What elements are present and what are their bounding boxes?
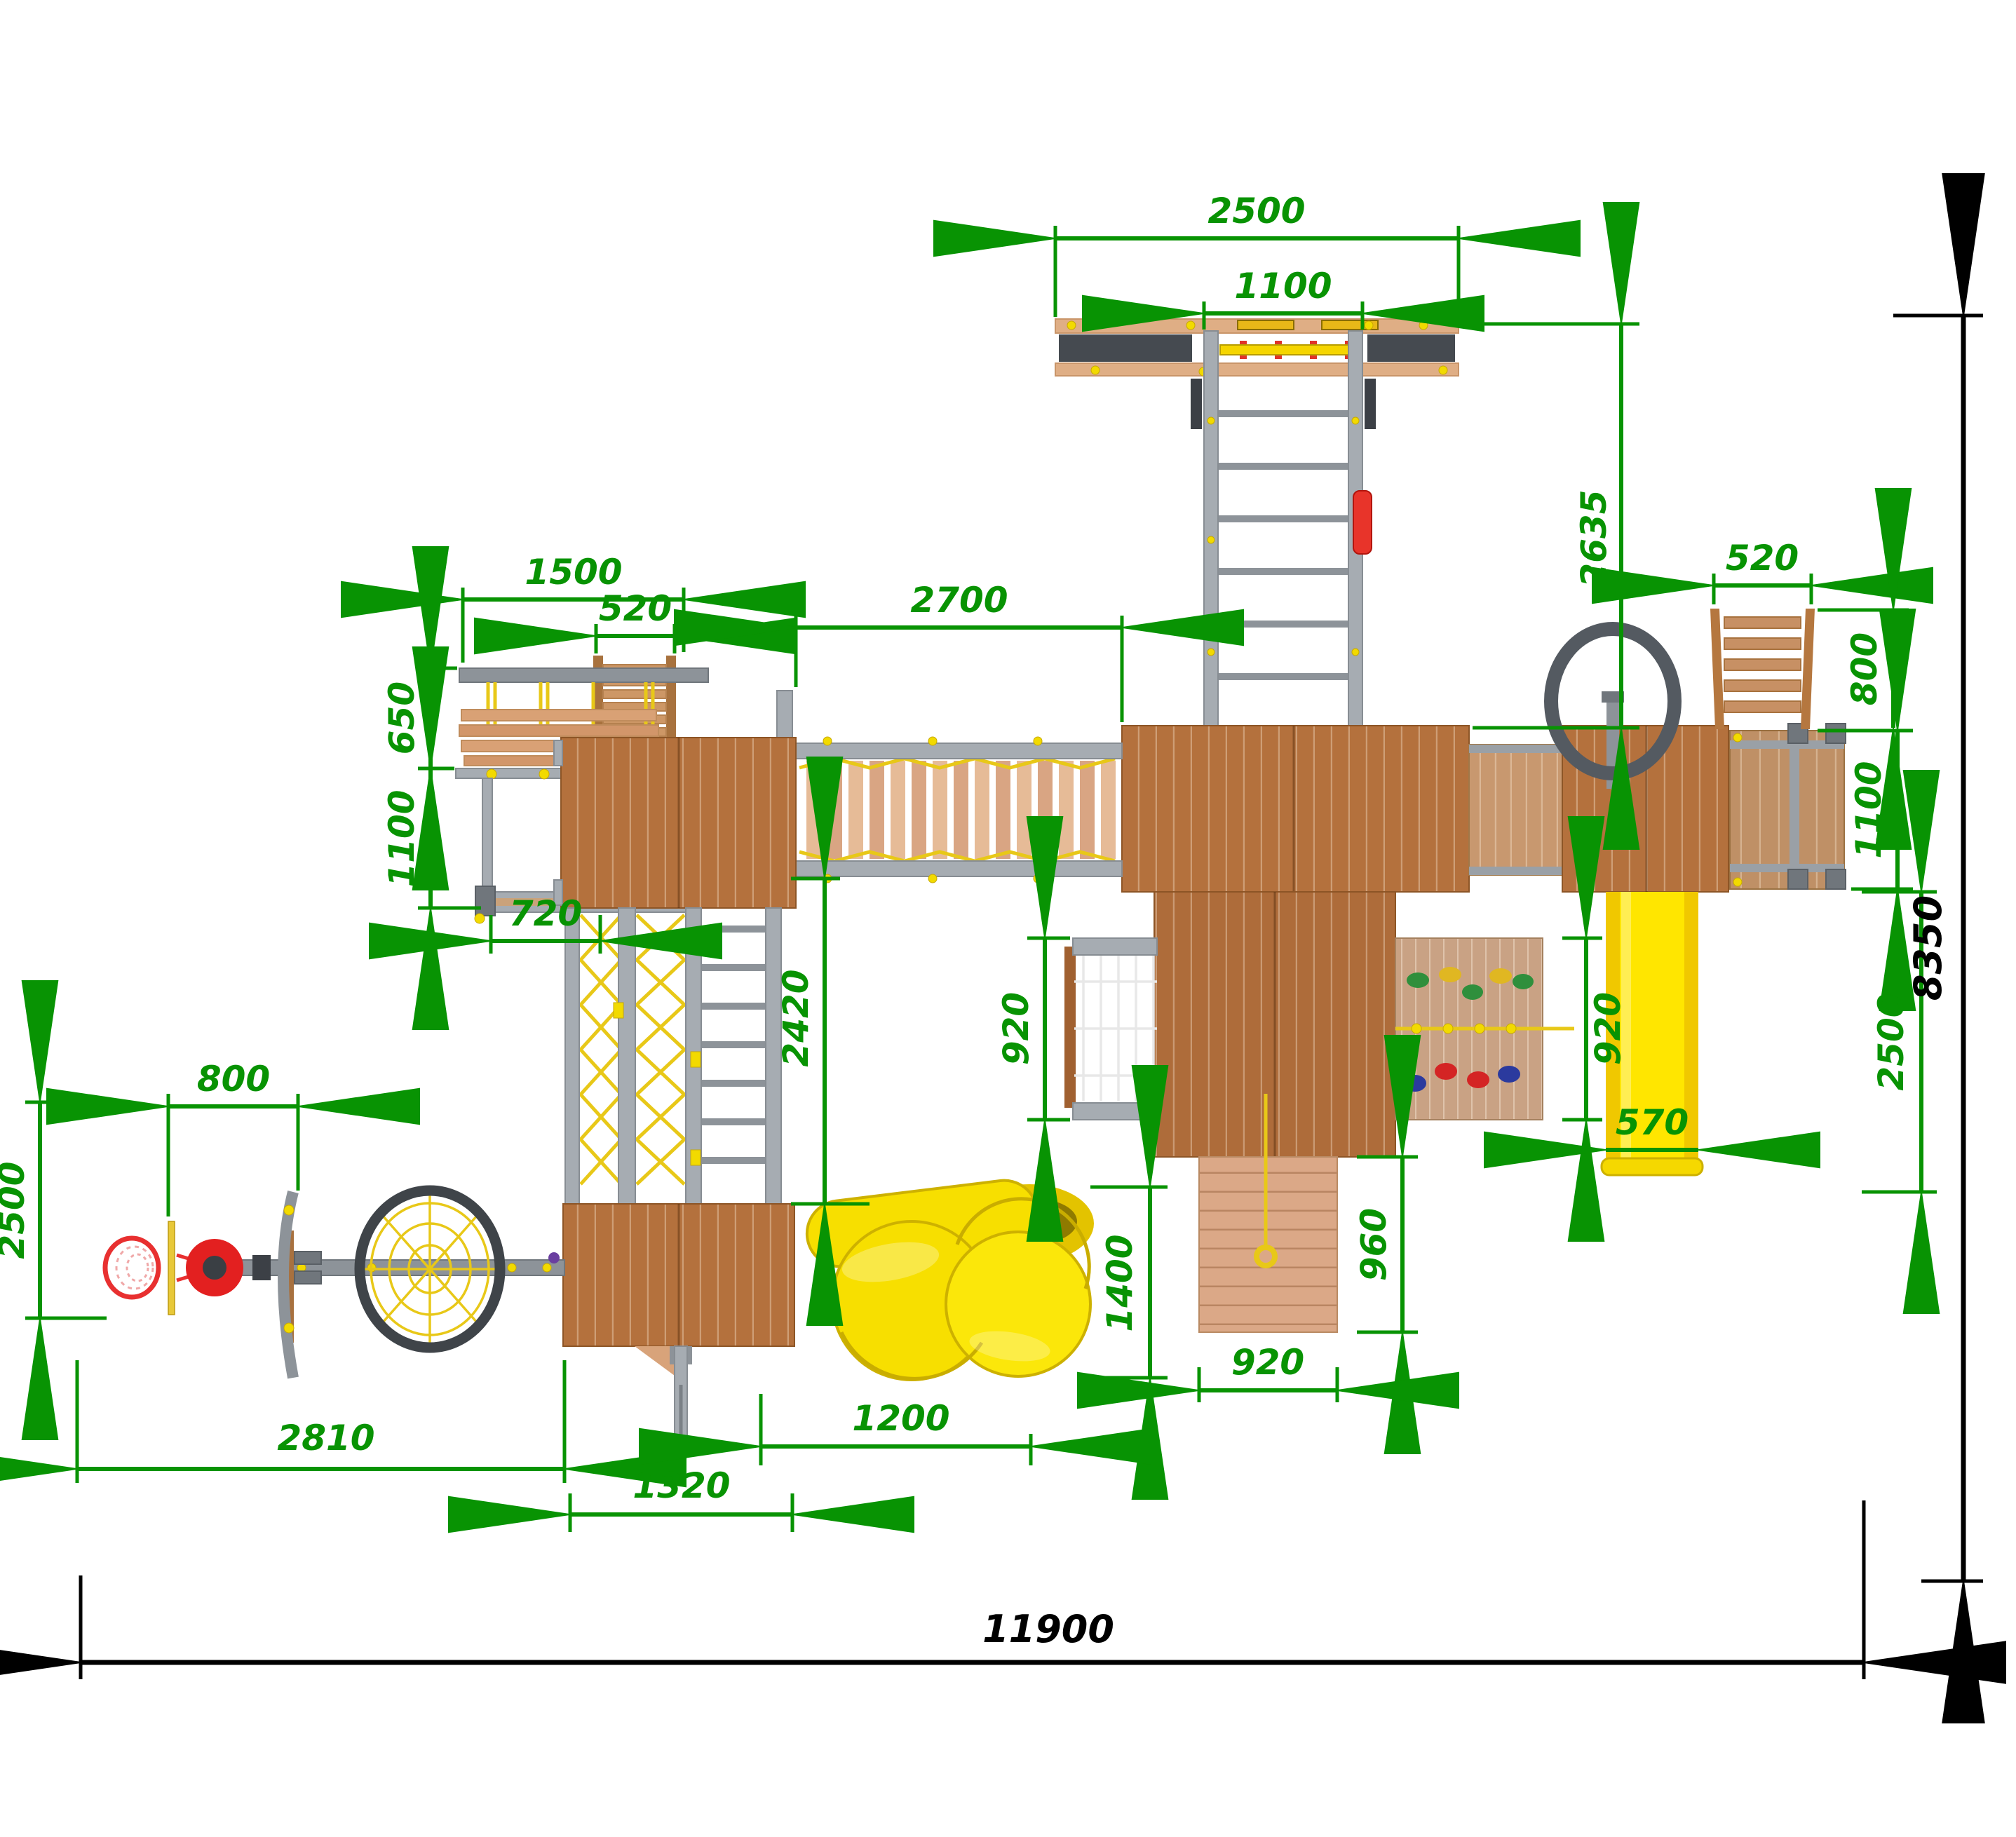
climbing-net	[1064, 938, 1157, 1120]
wall-hold-blue	[1498, 1066, 1520, 1083]
right-access-ladder	[1710, 609, 1815, 729]
dim-net-height: 920	[996, 938, 1070, 1120]
dim-beam-width-label: 2500	[1207, 191, 1305, 231]
dim-arm-radius-label: 2500	[0, 1161, 32, 1259]
dim-right-ladder-length: 800	[1818, 610, 1909, 728]
wall-hold-blue	[1404, 1075, 1426, 1092]
dim-swing-width-label: 1500	[525, 552, 622, 592]
dim-lower-platform: 1320	[570, 1465, 792, 1532]
dim-arm-radius: 2500	[0, 1102, 107, 1318]
walkway	[1469, 745, 1562, 875]
center-lower-platform	[1154, 892, 1395, 1157]
wall-hold-red	[1467, 1071, 1489, 1088]
dim-bridge-label: 2700	[910, 580, 1008, 621]
center-platform	[1122, 726, 1469, 892]
dim-bridge: 2700	[796, 580, 1122, 722]
dim-frame-width-label: 720	[509, 893, 582, 934]
dim-overall-width: 11900	[81, 1500, 1864, 1679]
dim-arm-length: 2810	[77, 1360, 564, 1483]
dim-spiral-offset-label: 1200	[852, 1398, 949, 1439]
dim-slide-width: 570	[1606, 1102, 1698, 1150]
punch-ball	[186, 1239, 243, 1296]
tower-climbers	[565, 908, 781, 1204]
wall-hold-green	[1462, 984, 1483, 1000]
dim-lower-platform-label: 1320	[632, 1465, 730, 1506]
dim-entry-ladder-label: 2635	[1574, 489, 1614, 587]
right-deck	[1730, 724, 1846, 889]
red-grip	[1353, 491, 1372, 554]
dim-overall-depth-label: 8350	[1906, 895, 1950, 1001]
dim-slide-length-label: 2500	[1871, 993, 1912, 1090]
wall-hold-yellow	[1439, 967, 1461, 982]
dim-wall-height-label: 920	[1588, 992, 1628, 1065]
dim-hoop-offset-label: 800	[197, 1059, 270, 1099]
entry-ladder	[1191, 331, 1376, 729]
climbing-wall	[1395, 938, 1574, 1120]
dim-spiral-offset: 1200	[761, 1394, 1031, 1465]
wall-hold-green	[1407, 972, 1429, 988]
dim-right-ladder-length-label: 800	[1844, 632, 1885, 705]
dim-ramp-length-label: 960	[1353, 1208, 1394, 1281]
dim-arm-length-label: 2810	[277, 1418, 374, 1458]
dim-tower-drop: 2420	[776, 879, 870, 1204]
purple-clip	[548, 1252, 560, 1263]
dim-hoop-offset: 800	[168, 1059, 298, 1216]
dim-right-ladder-width: 520	[1714, 538, 1811, 604]
wall-hold-yellow	[1489, 968, 1512, 984]
wall-hold-green	[1513, 974, 1534, 989]
dim-overall-depth: 8350	[1893, 316, 1983, 1581]
dim-right-deck-label: 1100	[1848, 761, 1889, 858]
dim-stairs-width-label: 520	[599, 588, 672, 629]
swing-seat-wedge	[635, 1346, 675, 1376]
dim-ramp-width-label: 920	[1231, 1342, 1304, 1383]
dim-spiral-size-label: 1400	[1100, 1234, 1140, 1331]
right-platform	[1562, 726, 1729, 892]
dim-swing-frame: 1100	[381, 768, 481, 908]
monkeybar-beam	[1055, 319, 1459, 376]
upper-left-platform	[554, 738, 796, 908]
dim-net-height-label: 920	[996, 992, 1036, 1065]
wall-hold-red	[1435, 1063, 1457, 1080]
drawing-canvas: 2500 1100 2635 1500 520 650 1100	[0, 0, 2016, 1837]
dim-ramp-length: 960	[1353, 1157, 1418, 1332]
dim-slide-width-label: 570	[1616, 1102, 1689, 1143]
dim-swing-depth-label: 650	[381, 682, 422, 754]
dim-ramp-width: 920	[1199, 1342, 1337, 1402]
dim-swing-frame-label: 1100	[381, 789, 422, 887]
dim-stairs-width: 520	[596, 588, 675, 653]
dim-spiral-size: 1400	[1090, 1187, 1168, 1378]
dim-right-ladder-width-label: 520	[1726, 538, 1799, 578]
backboard-arc	[283, 1192, 321, 1378]
rope-bridge	[777, 691, 1122, 883]
dim-beam-inner-label: 1100	[1234, 266, 1332, 306]
spiral-tube-slide	[804, 1177, 1094, 1380]
dim-overall-width-label: 11900	[982, 1607, 1114, 1651]
dim-swing-depth: 650	[381, 668, 457, 768]
dim-tower-drop-label: 2420	[776, 969, 816, 1066]
